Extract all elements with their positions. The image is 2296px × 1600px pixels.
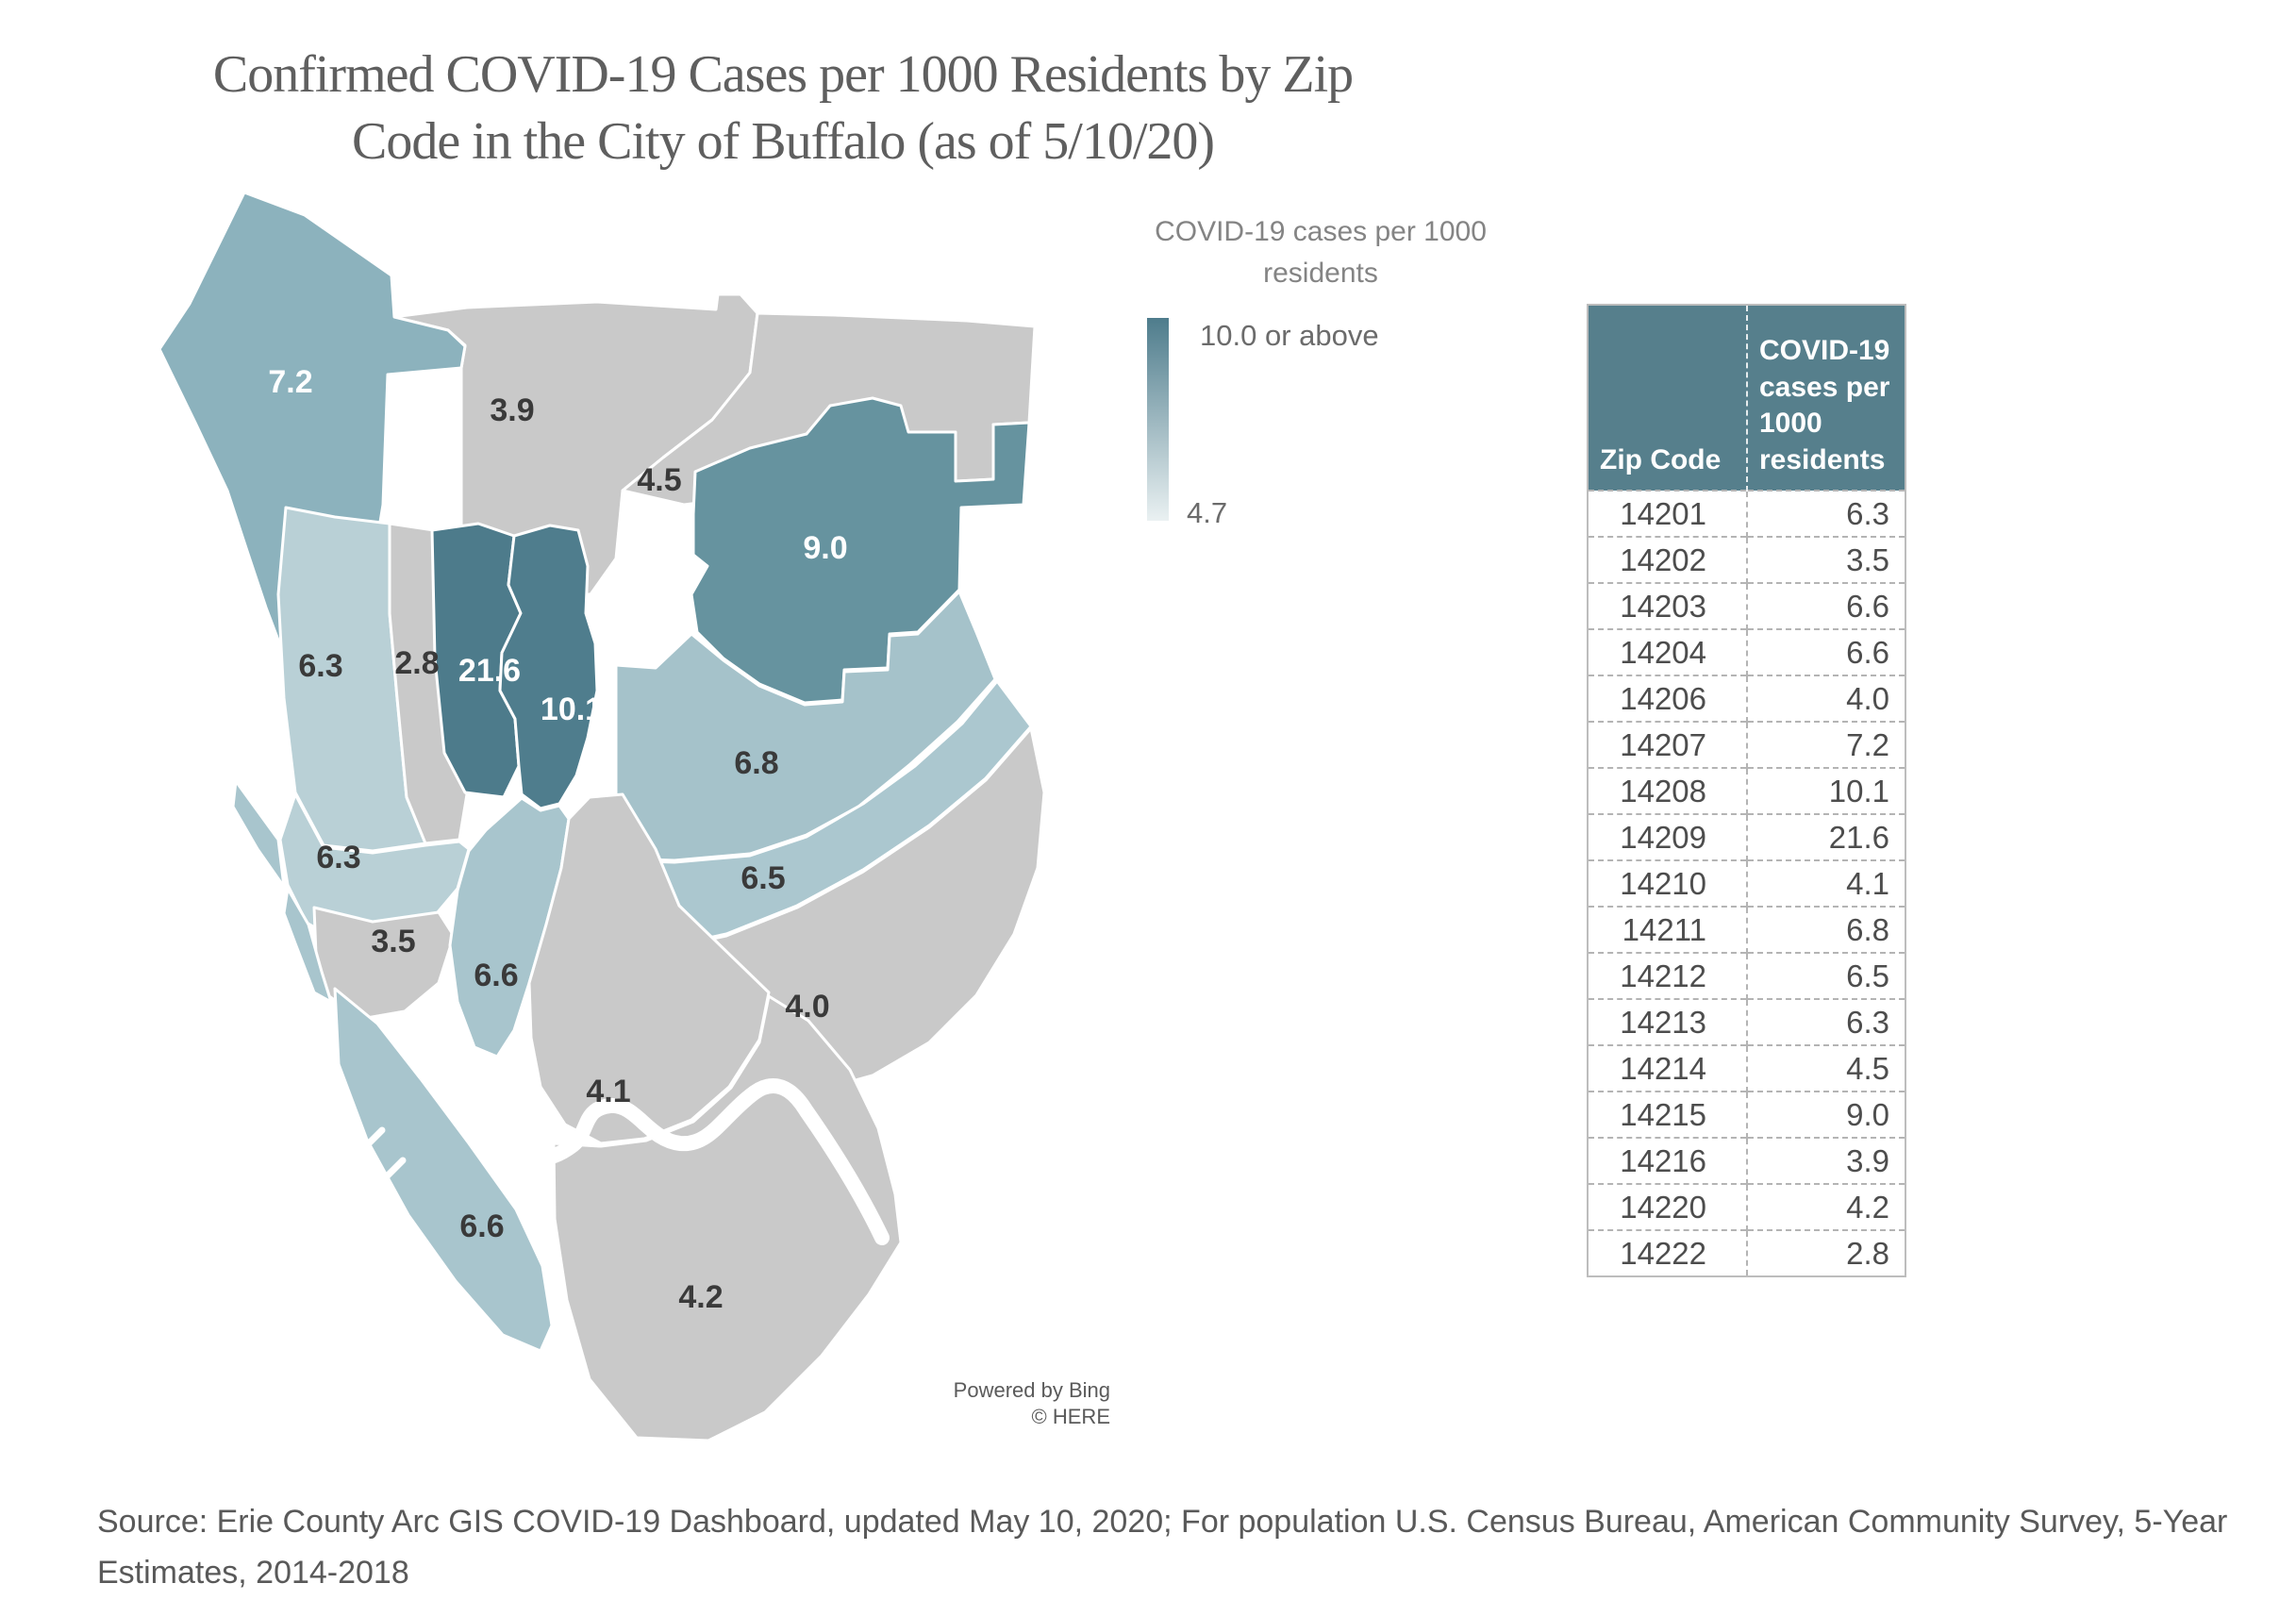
table-cell-zip: 14206 xyxy=(1588,675,1747,722)
table-row-14202: 142023.5 xyxy=(1588,537,1905,583)
table-row-14215: 142159.0 xyxy=(1588,1092,1905,1138)
map-label-14201: 6.3 xyxy=(316,840,360,875)
map-label-14203: 6.6 xyxy=(459,1208,504,1244)
map-water-dock-cut-3 xyxy=(427,1288,458,1318)
map-attribution: Powered by Bing © HERE xyxy=(917,1377,1110,1429)
table-cell-zip: 14214 xyxy=(1588,1045,1747,1092)
map-label-14207: 7.2 xyxy=(268,364,312,400)
table-cell-zip: 14204 xyxy=(1588,629,1747,675)
table-header-row: Zip Code COVID-19 cases per 1000 residen… xyxy=(1588,305,1905,491)
table-cell-value: 6.3 xyxy=(1747,999,1905,1045)
map-attribution-here: © HERE xyxy=(917,1404,1110,1430)
table-row-14211: 142116.8 xyxy=(1588,907,1905,953)
map-label-14216: 3.9 xyxy=(490,392,534,428)
table-cell-value: 6.6 xyxy=(1747,583,1905,629)
map-region-14203 xyxy=(335,989,552,1351)
table-row-14203: 142036.6 xyxy=(1588,583,1905,629)
table-cell-value: 6.6 xyxy=(1747,629,1905,675)
table-cell-zip: 14210 xyxy=(1588,860,1747,907)
table-row-14213: 142136.3 xyxy=(1588,999,1905,1045)
table-cell-zip: 14215 xyxy=(1588,1092,1747,1138)
table-row-14201: 142016.3 xyxy=(1588,491,1905,537)
map-attribution-bing: Powered by Bing xyxy=(917,1377,1110,1404)
table-cell-zip: 14209 xyxy=(1588,814,1747,860)
table-row-14214: 142144.5 xyxy=(1588,1045,1905,1092)
map-label-14208: 10.1 xyxy=(541,692,603,727)
table-row-14208: 1420810.1 xyxy=(1588,768,1905,814)
map-label-14209: 21.6 xyxy=(458,653,521,689)
table-cell-value: 2.8 xyxy=(1747,1230,1905,1276)
table-cell-zip: 14208 xyxy=(1588,768,1747,814)
table-row-14210: 142104.1 xyxy=(1588,860,1905,907)
table-row-14216: 142163.9 xyxy=(1588,1138,1905,1184)
table-cell-value: 6.3 xyxy=(1747,491,1905,537)
table-cell-zip: 14216 xyxy=(1588,1138,1747,1184)
table-cell-zip: 14222 xyxy=(1588,1230,1747,1276)
table-cell-value: 4.0 xyxy=(1747,675,1905,722)
legend-title-line2: residents xyxy=(1132,253,1509,294)
table-cell-zip: 14207 xyxy=(1588,722,1747,768)
map-label-14204: 6.6 xyxy=(474,958,518,993)
map-label-14213: 6.3 xyxy=(298,648,342,684)
table-cell-zip: 14203 xyxy=(1588,583,1747,629)
map-label-14220: 4.2 xyxy=(678,1279,723,1315)
table-cell-zip: 14201 xyxy=(1588,491,1747,537)
legend-min-label: 4.7 xyxy=(1187,496,1227,530)
table-row-14209: 1420921.6 xyxy=(1588,814,1905,860)
map-label-14202: 3.5 xyxy=(371,924,415,959)
page-title: Confirmed COVID-19 Cases per 1000 Reside… xyxy=(113,42,1453,175)
legend-title: COVID-19 cases per 1000 residents xyxy=(1132,211,1509,293)
source-note-line1: Source: Erie County Arc GIS COVID-19 Das… xyxy=(97,1496,2248,1547)
buffalo-zip-choropleth-map: 3.94.59.07.26.32.821.610.16.86.54.06.33.… xyxy=(146,189,1071,1443)
table-cell-value: 9.0 xyxy=(1747,1092,1905,1138)
map-label-14214: 4.5 xyxy=(637,462,681,498)
table-cell-zip: 14202 xyxy=(1588,537,1747,583)
table-cell-zip: 14211 xyxy=(1588,907,1747,953)
legend-max-label: 10.0 or above xyxy=(1200,319,1379,353)
table-cell-value: 6.5 xyxy=(1747,953,1905,999)
page-title-line1: Confirmed COVID-19 Cases per 1000 Reside… xyxy=(113,42,1453,108)
table-cell-value: 7.2 xyxy=(1747,722,1905,768)
table-cell-value: 6.8 xyxy=(1747,907,1905,953)
table-cell-value: 4.2 xyxy=(1747,1184,1905,1230)
table-header-cases-per-1000: COVID-19 cases per 1000 residents xyxy=(1747,305,1905,491)
map-region-waterfront-sliver-2 xyxy=(233,781,284,887)
table-cell-zip: 14213 xyxy=(1588,999,1747,1045)
table-row-14204: 142046.6 xyxy=(1588,629,1905,675)
table-cell-value: 3.5 xyxy=(1747,537,1905,583)
map-label-14215: 9.0 xyxy=(803,530,847,566)
source-note: Source: Erie County Arc GIS COVID-19 Das… xyxy=(97,1496,2248,1599)
source-note-line2: Estimates, 2014-2018 xyxy=(97,1547,2248,1598)
table-cell-zip: 14220 xyxy=(1588,1184,1747,1230)
legend-gradient-bar xyxy=(1147,318,1169,521)
table-cell-value: 3.9 xyxy=(1747,1138,1905,1184)
table-cell-value: 10.1 xyxy=(1747,768,1905,814)
map-label-14206: 4.0 xyxy=(785,989,829,1025)
table-row-14207: 142077.2 xyxy=(1588,722,1905,768)
page-title-line2: Code in the City of Buffalo (as of 5/10/… xyxy=(113,108,1453,175)
table-cell-value: 4.5 xyxy=(1747,1045,1905,1092)
table-row-14212: 142126.5 xyxy=(1588,953,1905,999)
legend-title-line1: COVID-19 cases per 1000 xyxy=(1132,211,1509,253)
map-label-14210: 4.1 xyxy=(586,1074,630,1109)
table-cell-value: 4.1 xyxy=(1747,860,1905,907)
table-cell-zip: 14212 xyxy=(1588,953,1747,999)
table-row-14206: 142064.0 xyxy=(1588,675,1905,722)
map-label-14212: 6.5 xyxy=(740,860,785,896)
table-row-14220: 142204.2 xyxy=(1588,1184,1905,1230)
zip-code-table: Zip Code COVID-19 cases per 1000 residen… xyxy=(1587,304,1906,1277)
table-row-14222: 142222.8 xyxy=(1588,1230,1905,1276)
table-header-zip-code: Zip Code xyxy=(1588,305,1747,491)
map-label-14222: 2.8 xyxy=(394,645,439,681)
map-label-14211: 6.8 xyxy=(734,745,778,781)
table-cell-value: 21.6 xyxy=(1747,814,1905,860)
